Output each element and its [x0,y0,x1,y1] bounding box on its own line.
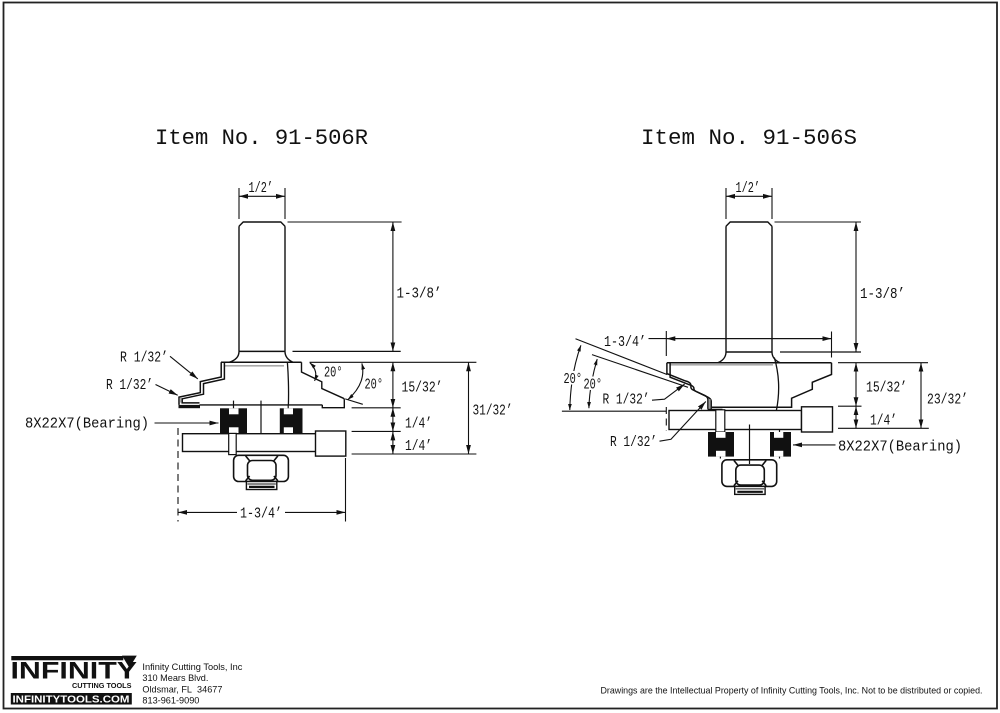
svg-text:20°: 20° [584,377,603,394]
svg-text:310 Mears Blvd.: 310 Mears Blvd. [142,673,208,684]
svg-text:1/4’: 1/4’ [405,438,432,455]
svg-text:R 1/32’: R 1/32’ [106,377,153,394]
svg-text:Item No. 91-506R: Item No. 91-506R [155,126,368,151]
svg-text:31/32’: 31/32’ [473,403,513,420]
svg-text:20°: 20° [564,371,583,388]
svg-text:15/32’: 15/32’ [402,380,443,397]
svg-text:1/4’: 1/4’ [405,416,432,433]
svg-text:CUTTING TOOLS: CUTTING TOOLS [72,681,132,690]
svg-text:813-961-9090: 813-961-9090 [142,696,199,707]
svg-text:1-3/8’: 1-3/8’ [397,286,442,303]
svg-text:R 1/32’: R 1/32’ [610,434,657,451]
svg-text:8X22X7(Bearing): 8X22X7(Bearing) [838,439,962,456]
svg-text:Oldsmar, FL 34677: Oldsmar, FL 34677 [142,684,222,695]
svg-text:1-3/4’: 1-3/4’ [604,334,646,351]
svg-text:Infinity Cutting Tools, Inc: Infinity Cutting Tools, Inc [142,662,242,673]
svg-text:23/32’: 23/32’ [927,392,968,409]
svg-text:R 1/32’: R 1/32’ [120,350,168,367]
svg-text:Drawings are the Intellectual: Drawings are the Intellectual Property o… [601,686,983,697]
svg-text:Item No. 91-506S: Item No. 91-506S [641,126,857,151]
svg-text:8X22X7(Bearing): 8X22X7(Bearing) [25,416,149,433]
svg-text:15/32’: 15/32’ [866,380,907,397]
svg-text:1/2’: 1/2’ [736,180,761,197]
svg-text:1-3/4’: 1-3/4’ [240,505,282,522]
svg-text:1/4’: 1/4’ [870,412,897,429]
svg-text:1/2’: 1/2’ [249,180,274,197]
svg-text:1-3/8’: 1-3/8’ [860,286,905,303]
svg-text:20°: 20° [324,364,343,381]
svg-text:R 1/32’: R 1/32’ [603,391,650,408]
svg-text:20°: 20° [365,377,384,394]
svg-text:INFINITYTOOLS.COM: INFINITYTOOLS.COM [13,694,130,705]
